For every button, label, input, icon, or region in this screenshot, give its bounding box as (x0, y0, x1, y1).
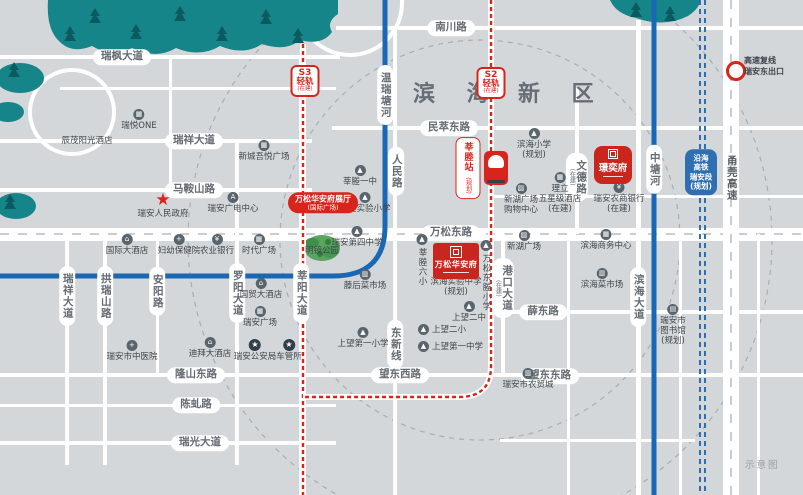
poi-label-line: (规划) (660, 336, 686, 346)
poi-shangwang-no1-primary: ▲上望第一小学 (337, 327, 388, 349)
poi-binhai-primary-planned: ▲滨海小学(规划) (517, 128, 551, 160)
poi-label: 辰茂阳光酒店 (61, 136, 112, 146)
seal-emblem-icon (450, 246, 462, 258)
bank-icon: ¥ (211, 234, 222, 245)
project-name: 璟奕府 (594, 160, 632, 174)
road-name-text: 陈虬路 (180, 398, 212, 410)
seal-emblem-icon (608, 149, 618, 159)
station-status: (规划) (465, 177, 472, 194)
poi-label: 瑞安市农贸城 (502, 380, 553, 390)
jingyifu-project-logo: 璟奕府 (594, 146, 632, 184)
poi-label: 迪拜大酒店 (189, 349, 232, 359)
poi-label: 新湖广场 (507, 242, 541, 252)
poi-vehicle-admin-office: ★车管所 (276, 339, 302, 362)
poi-label: 新湖广场购物中心 (504, 195, 538, 215)
road-name-text: 万松东路 (430, 226, 472, 238)
poi-label: 瑞安市中医院 (106, 352, 157, 362)
poi-label-line: 五星级酒店 (539, 194, 582, 204)
road-label-anyang-road: 安阳路 (149, 267, 165, 316)
poi-label-line: 新湖广场 (504, 195, 538, 205)
poi-label: 国贸大酒店 (240, 290, 283, 300)
poi-xincheng-wuyue-plaza: ▦新城吾悦广场 (238, 140, 289, 162)
road-name-text: 南川路 (435, 21, 467, 33)
school-icon: ▲ (357, 327, 368, 338)
government-star-icon: ★ (155, 192, 170, 208)
shopping-icon: ▨ (518, 230, 529, 241)
poi-shencheng-no6-primary: ▲莘塍六小 (417, 234, 428, 286)
road-name-text: 人民路 (391, 154, 403, 189)
poi-label-line: 上望第一中学 (432, 342, 483, 352)
poi-label-line: 瑞安市农贸城 (502, 380, 553, 390)
road-label-ruixiang-avenue-v: 瑞祥大道 (59, 266, 75, 326)
poi-label: 时代广场 (242, 246, 276, 256)
road-name-text: 中塘河 (649, 152, 661, 187)
poi-xinhu-plaza-mall: ▨新湖广场购物中心 (504, 183, 538, 215)
road-name-text: 瑞祥大道 (62, 273, 74, 319)
poi-label: 瑞安广电中心 (207, 204, 258, 214)
road-name-text: 瑞枫大道 (101, 50, 143, 62)
market-icon: ▥ (596, 268, 607, 279)
s3-badge-line: (在建) (296, 87, 313, 93)
poi-lili-five-star-hotel: ▦理立五星级酒店(在建) (539, 172, 582, 214)
hospital-icon: + (173, 234, 184, 245)
broadcast-icon: A (227, 192, 238, 203)
poi-label: 滨海商务中心 (580, 241, 631, 251)
poi-label-line: (在建) (593, 204, 644, 214)
exhibition-hall-badge: 万松华安府展厅 (国际广场) (288, 192, 358, 213)
poi-label: 理立五星级酒店(在建) (539, 184, 582, 214)
poi-label-line: 滨海商务中心 (580, 241, 631, 251)
poi-label: 国际大酒店 (106, 246, 149, 256)
poi-mingjing-park-label: 明镜公园 (305, 246, 339, 256)
poi-label-line: 新湖广场 (507, 242, 541, 252)
poi-label-line: 辰茂阳光酒店 (61, 136, 112, 146)
hotel-icon: ⌂ (255, 278, 266, 289)
road-label-chenqiu-road: 陈虬路 (172, 397, 220, 413)
poi-label-line: 藤后菜市场 (344, 281, 387, 291)
poi-label: 莘塍一中 (343, 177, 377, 187)
coastal-hsr-badge: 沿海 高铁 瑞安段 (规划) (685, 149, 717, 195)
poi-ruian-government: ★瑞安人民政府 (137, 192, 188, 219)
expressway-exit-icon (726, 61, 746, 81)
hospital-icon: + (126, 340, 137, 351)
road-label-zhongtang-river-label: 中塘河 (646, 145, 662, 194)
police-star-icon: ★ (249, 339, 261, 351)
wansong-huaanfu-project-logo: 万松华安府 (433, 243, 479, 279)
s2-light-rail-badge: S2 轻轨 (在建) (476, 67, 505, 99)
road-label-shenyang-avenue: 莘阳大道 (293, 263, 309, 323)
train-windshield (488, 155, 504, 168)
s2-badge-line: (在建) (482, 89, 499, 95)
poi-ruian-no4-middle-school: ▲瑞安第四中学 (331, 226, 382, 248)
poi-xinhu-plaza: ▨新湖广场 (507, 230, 541, 252)
road-label-wangdong-west-road: 望东西路 (371, 367, 429, 383)
poi-label-line: 莘塍一中 (343, 177, 377, 187)
poi-ruian-broadcast-center: A瑞安广电中心 (207, 192, 258, 214)
road-label-wenrui-tang-river-label: 温瑞塘河 (377, 65, 393, 125)
road-label-binhai-avenue: 滨海大道 (630, 267, 646, 327)
poi-dubai-hotel: ⌂迪拜大酒店 (189, 337, 232, 359)
poi-guomao-hotel: ⌂国贸大酒店 (240, 278, 283, 300)
poi-label-line: 上望第一小学 (337, 339, 388, 349)
building-icon: ▦ (554, 172, 565, 183)
poi-ruiyue-one: ▦瑞悦ONE (121, 109, 156, 131)
poi-ruian-public-security: ★瑞安公安局 (234, 339, 277, 362)
hotel-icon: ⌂ (121, 234, 132, 245)
poi-label-line: 明镜公园 (305, 246, 339, 256)
poi-label: 瑞安农商银行(在建) (593, 194, 644, 214)
school-icon: ▲ (463, 301, 474, 312)
building-icon: ▦ (253, 234, 264, 245)
logo-divider (443, 272, 469, 273)
road-name-text: 东新线 (390, 327, 402, 362)
poi-agricultural-bank: ¥农业银行 (200, 234, 234, 256)
school-icon: ▲ (528, 128, 539, 139)
poi-label: 瑞安公安局 (234, 352, 277, 362)
road-label-ruifeng-avenue: 瑞枫大道 (93, 49, 151, 65)
poi-label: 瑞安人民政府 (137, 209, 188, 219)
legend-note: 示意图 (745, 457, 780, 471)
poi-label-line: 滨海小学 (517, 140, 551, 150)
hsr-badge-line: (规划) (685, 181, 717, 190)
poi-label: 上望二小 (432, 325, 466, 335)
road-name-text: 安阳路 (152, 274, 164, 309)
shencheng-station-badge: 莘塍站 (规划) (456, 137, 481, 199)
poi-label-line: 瑞安广电中心 (207, 204, 258, 214)
road-status-text: (在建) (494, 265, 501, 311)
market-icon: ▥ (359, 269, 370, 280)
exit-label-line: 瑞安东出口 (744, 66, 784, 77)
road-name-text: 温瑞塘河 (380, 72, 392, 118)
poi-label-line: 瑞安市中医院 (106, 352, 157, 362)
poi-label: 瑞安第四中学 (331, 238, 382, 248)
road-name-text: 隆山东路 (175, 368, 217, 380)
poi-label-line: (在建) (539, 204, 582, 214)
train-base (487, 180, 505, 183)
poi-ruian-plaza: ▦瑞安广场 (243, 306, 277, 328)
exhibition-location: (国际广场) (295, 204, 351, 212)
poi-label: 明镜公园 (305, 246, 339, 256)
poi-shangwang-no1-middle: ▲上望第一中学 (418, 341, 483, 353)
poi-label: 新城吾悦广场 (238, 152, 289, 162)
s3-light-rail-badge: S3 轻轨 (在建) (290, 65, 319, 97)
building-icon: ▦ (133, 109, 144, 120)
poi-label: 瑞安广场 (243, 318, 277, 328)
road-name-text: 甬莞高速 (726, 155, 738, 201)
logo-divider (603, 176, 623, 177)
project-name: 万松华安府 (433, 259, 479, 270)
poi-label-line: 万松东塍小学 (481, 254, 491, 311)
road-label-gongruishan-road: 拱瑞山路 (97, 266, 113, 326)
poi-label: 上望二中 (452, 313, 486, 323)
poi-label: 藤后菜市场 (344, 281, 387, 291)
district-name-part2: 新 区 (518, 76, 606, 108)
poi-ruian-rural-commercial-bank: ¥瑞安农商银行(在建) (593, 182, 644, 214)
school-icon: ▲ (417, 234, 428, 245)
poi-label-line: 农业银行 (200, 246, 234, 256)
poi-label: 瑞悦ONE (121, 121, 156, 131)
poi-label-line: 时代广场 (242, 246, 276, 256)
poi-label: 滨海菜市场 (581, 280, 624, 290)
poi-label-line: 瑞安市 (660, 316, 686, 326)
poi-ruian-tcm-hospital: +瑞安市中医院 (106, 340, 157, 362)
poi-chenmao-sunshine-hotel: 辰茂阳光酒店 (61, 136, 112, 146)
school-icon: ▲ (481, 240, 492, 251)
station-name: 莘塍站 (463, 142, 473, 172)
poi-label-line: 瑞安广场 (243, 318, 277, 328)
poi-label-line: 瑞安第四中学 (331, 238, 382, 248)
poi-label-line: 上望二中 (452, 313, 486, 323)
hsr-badge-line: 沿海 (685, 153, 717, 162)
road-label-gangkou-avenue: 港口大道(在建) (492, 258, 514, 318)
poi-label: 滨海实验中学(规划) (430, 277, 481, 297)
poi-label: 滨海小学(规划) (517, 140, 551, 160)
poi-label-line: 莘塍六小 (417, 248, 427, 286)
poi-label: 上望第一中学 (432, 342, 483, 352)
school-icon: ▲ (359, 192, 370, 203)
road-name-text: 莘阳大道 (296, 270, 308, 316)
road-label-mincui-east-road: 民萃东路 (420, 120, 478, 136)
map-root: 滨 海 新 区 S3 轻轨 (在建) S2 轻轨 (在建) 莘塍站 (规划) 万… (0, 0, 803, 495)
poi-binhai-business-center: ▦滨海商务中心 (580, 229, 631, 251)
poi-label-line: 理立 (539, 184, 582, 194)
poi-label-line: 迪拜大酒店 (189, 349, 232, 359)
road-label-nanchuan-road: 南川路 (427, 20, 475, 36)
poi-label: 车管所 (276, 352, 302, 362)
poi-binhai-food-market: ▥滨海菜市场 (581, 268, 624, 290)
labels-layer: 滨 海 新 区 S3 轻轨 (在建) S2 轻轨 (在建) 莘塍站 (规划) 万… (0, 0, 803, 495)
exit-label-line: 高速复线 (744, 55, 784, 66)
poi-shangwang-no2-primary: ▲上望二小 (418, 324, 466, 336)
road-name-text: 望东西路 (379, 368, 421, 380)
road-label-xuedong-road: 薛东路 (519, 304, 567, 320)
poi-label-line: 国贸大酒店 (240, 290, 283, 300)
hsr-badge-line: 瑞安段 (685, 172, 717, 181)
market-icon: ▥ (522, 368, 533, 379)
hsr-badge-line: 高铁 (685, 163, 717, 172)
poi-label-line: 图书馆 (660, 326, 686, 336)
road-name-text: 拱瑞山路 (100, 273, 112, 319)
poi-maternal-child-hospital: +妇幼保健院 (158, 234, 201, 256)
police-star-icon: ★ (283, 339, 295, 351)
poi-tenghou-market: ▥藤后菜市场 (344, 269, 387, 291)
shopping-icon: ▨ (515, 183, 526, 194)
poi-label-line: 车管所 (276, 352, 302, 362)
library-icon: ▤ (667, 304, 678, 315)
road-label-wansong-east-road: 万松东路 (422, 225, 480, 241)
poi-label: 农业银行 (200, 246, 234, 256)
poi-label-line: 瑞悦ONE (121, 121, 156, 131)
poi-label-line: 妇幼保健院 (158, 246, 201, 256)
building-icon: ▦ (600, 229, 611, 240)
road-label-renmin-road: 人民路 (388, 147, 404, 196)
school-icon: ▲ (354, 165, 365, 176)
poi-label-line: 新城吾悦广场 (238, 152, 289, 162)
poi-label-line: 瑞安公安局 (234, 352, 277, 362)
poi-label-line: 瑞安人民政府 (137, 209, 188, 219)
poi-label: 妇幼保健院 (158, 246, 201, 256)
building-icon: ▦ (254, 306, 265, 317)
poi-label-line: 国际大酒店 (106, 246, 149, 256)
poi-ruian-library-planned: ▤瑞安市图书馆(规划) (660, 304, 686, 346)
poi-shencheng-no1-middle-school: ▲莘塍一中 (343, 165, 377, 187)
road-name-text: 薛东路 (527, 305, 559, 317)
poi-label-line: (规划) (430, 287, 481, 297)
poi-label-line: 瑞安农商银行 (593, 194, 644, 204)
poi-times-square: ▦时代广场 (242, 234, 276, 256)
train-icon (484, 151, 508, 185)
road-name-text: 滨海大道 (633, 274, 645, 320)
poi-wansong-dongcheng-primary: ▲万松东塍小学 (481, 240, 492, 311)
poi-label-line: 滨海菜市场 (581, 280, 624, 290)
school-icon: ▲ (351, 226, 362, 237)
school-icon: ▲ (418, 341, 429, 352)
expressway-exit-label: 高速复线 瑞安东出口 (744, 55, 784, 77)
hotel-icon: ⌂ (204, 337, 215, 348)
poi-international-hotel: ⌂国际大酒店 (106, 234, 149, 256)
poi-label-line: 购物中心 (504, 205, 538, 215)
school-icon: ▲ (418, 324, 429, 335)
road-label-yongguan-expressway: 甬莞高速 (723, 148, 739, 208)
road-name-text: 瑞光大道 (179, 436, 221, 448)
road-label-longshan-east-road: 隆山东路 (167, 367, 225, 383)
road-name-text: 瑞祥大道 (173, 134, 215, 146)
poi-ruian-agri-trade-city: ▥瑞安市农贸城 (502, 368, 553, 390)
poi-label-line: (规划) (517, 150, 551, 160)
road-label-dongxin-line: 东新线 (387, 320, 403, 369)
building-icon: ▦ (258, 140, 269, 151)
poi-label: 上望第一小学 (337, 339, 388, 349)
road-label-ruixiang-avenue-h: 瑞祥大道 (165, 133, 223, 149)
poi-label-line: 上望二小 (432, 325, 466, 335)
road-name-text: 民萃东路 (428, 121, 470, 133)
road-name-text: 港口大道 (501, 265, 513, 311)
road-label-ruiguang-avenue: 瑞光大道 (171, 435, 229, 451)
poi-label: 万松东塍小学 (481, 254, 491, 311)
poi-label: 瑞安市图书馆(规划) (660, 316, 686, 346)
poi-label: 莘塍六小 (417, 248, 427, 286)
